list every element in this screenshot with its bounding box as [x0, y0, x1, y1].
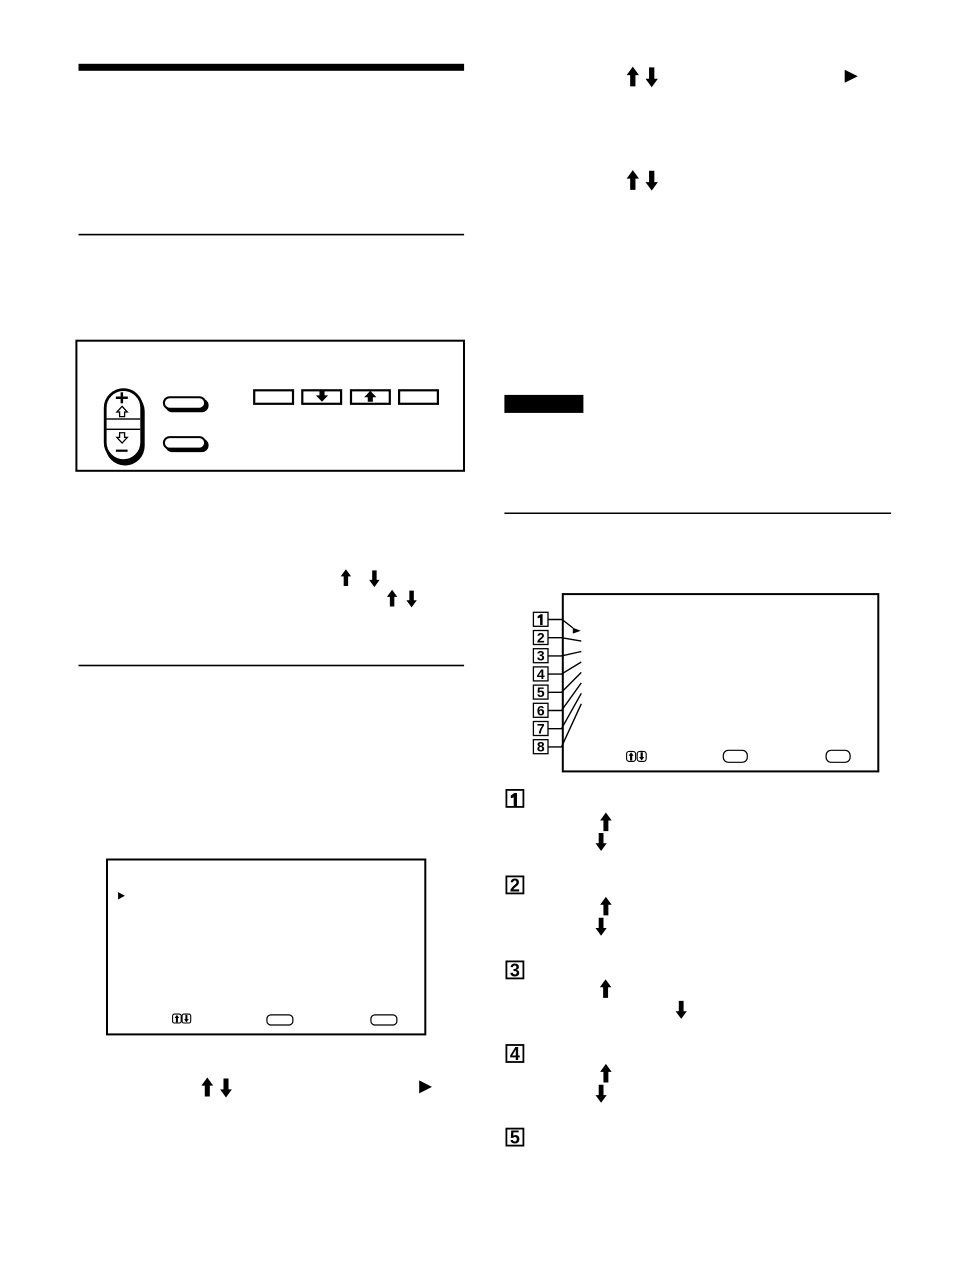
svg-text:7: 7: [537, 721, 545, 737]
svg-text:3: 3: [510, 960, 520, 980]
svg-text:4: 4: [537, 666, 545, 682]
svg-text:2: 2: [537, 630, 545, 646]
svg-text:4: 4: [510, 1044, 520, 1064]
svg-text:6: 6: [537, 702, 545, 718]
svg-text:5: 5: [537, 684, 545, 700]
svg-text:3: 3: [537, 648, 545, 664]
svg-text:8: 8: [537, 739, 545, 755]
svg-text:5: 5: [510, 1128, 520, 1148]
svg-text:2: 2: [510, 875, 520, 895]
